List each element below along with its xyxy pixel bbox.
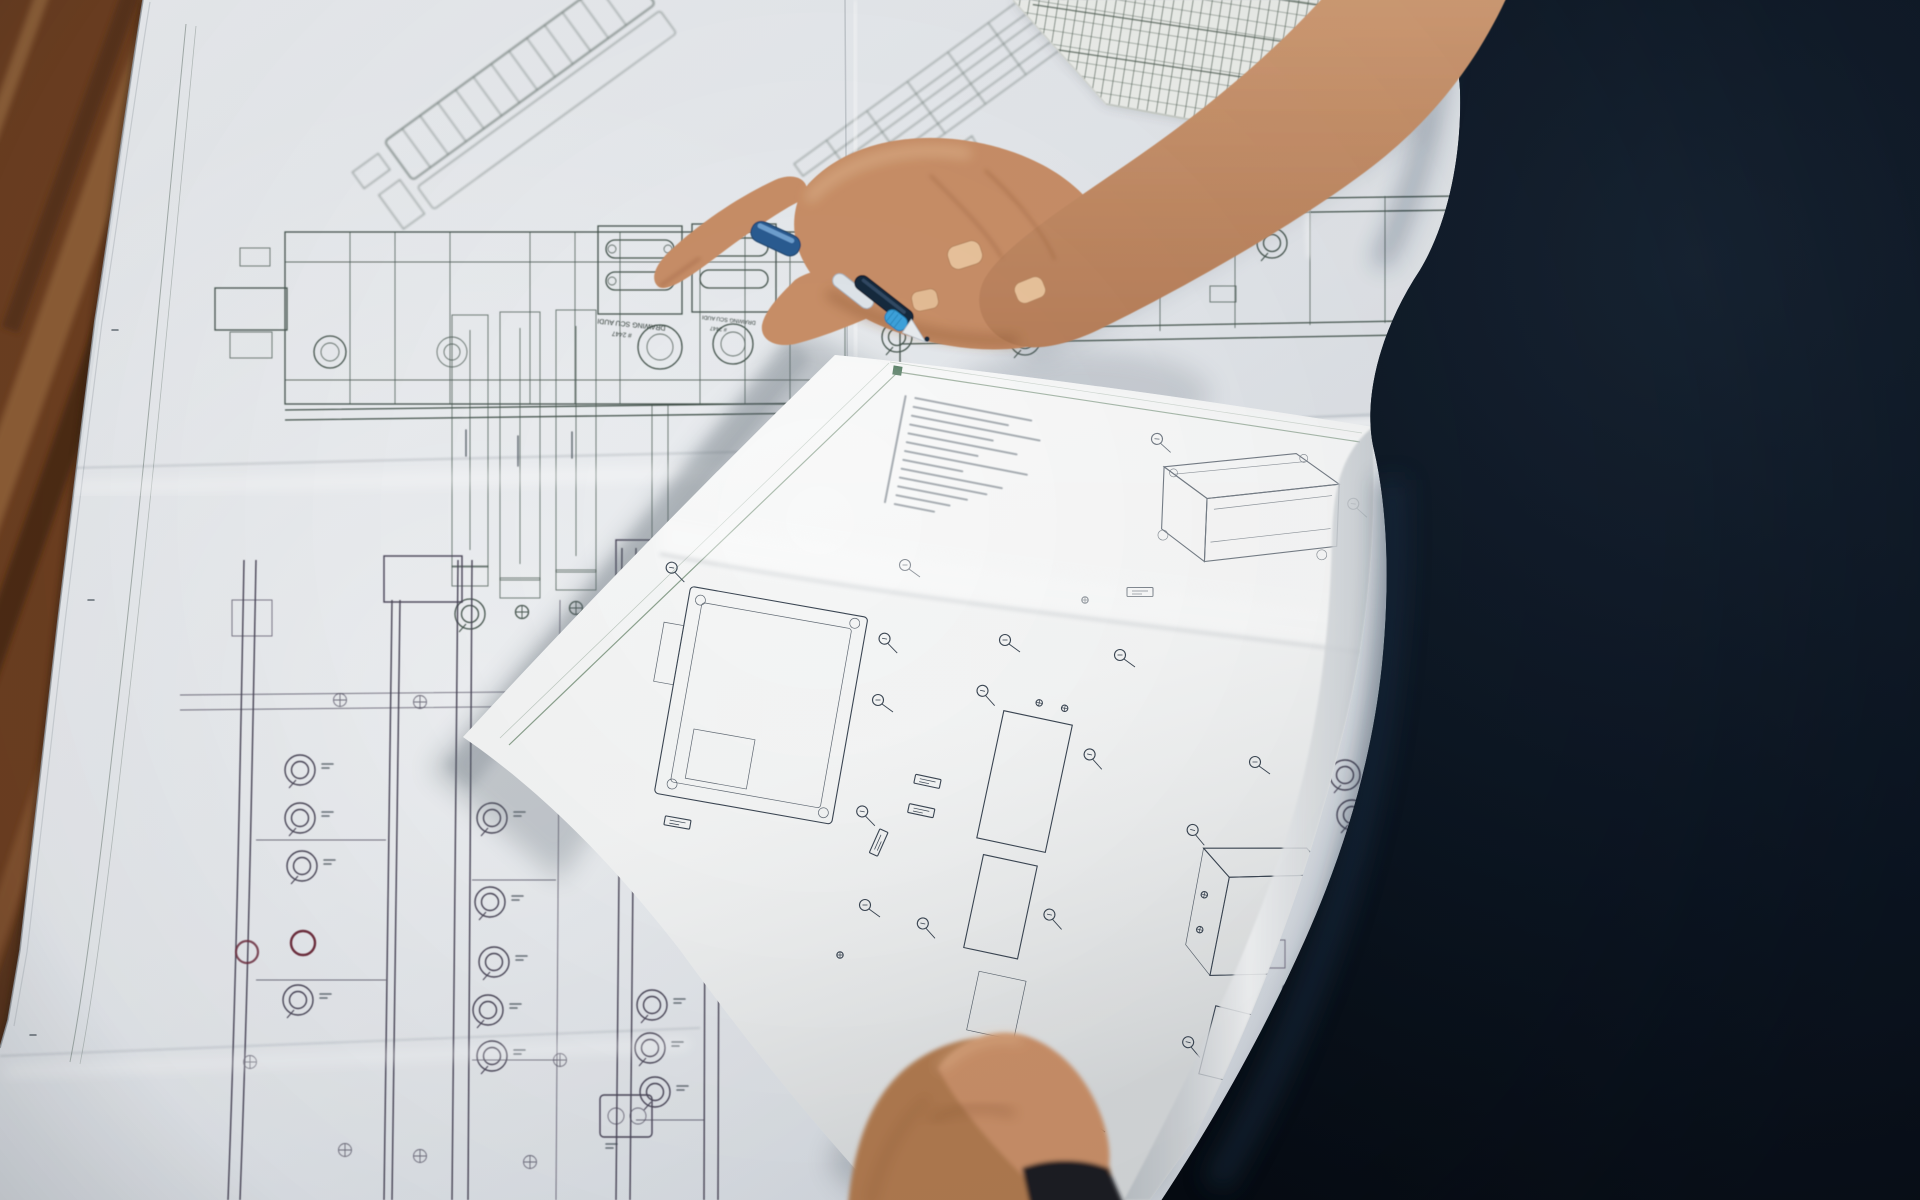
vignette xyxy=(0,0,1920,1200)
scene-canvas: DRAWING SCU AUDI # 2447 DRAWING SCU AUDI… xyxy=(0,0,1920,1200)
photo-scene: DRAWING SCU AUDI # 2447 DRAWING SCU AUDI… xyxy=(0,0,1920,1200)
